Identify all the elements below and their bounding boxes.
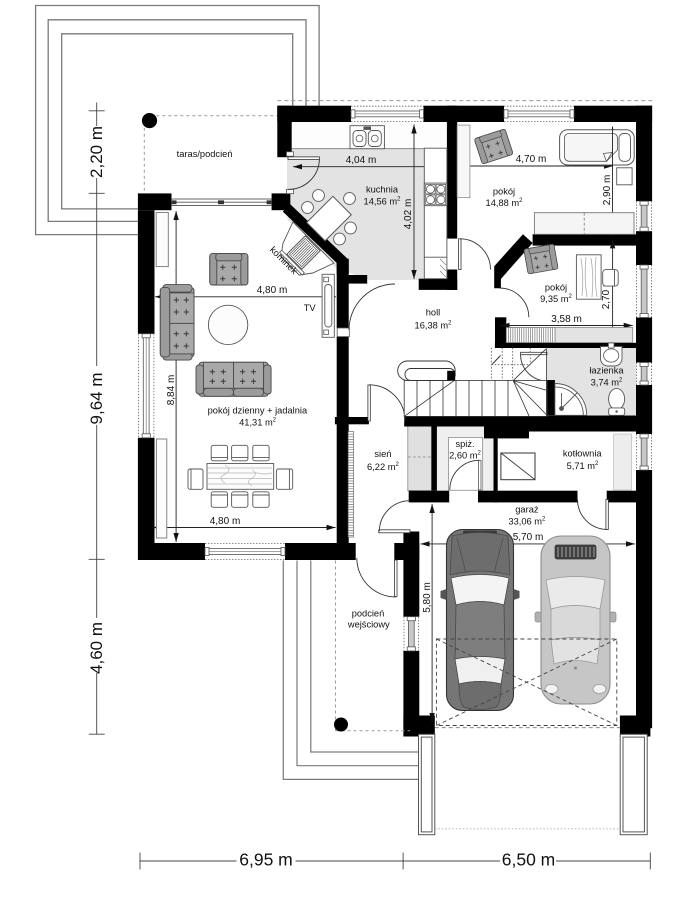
svg-text:4,70 m: 4,70 m — [516, 154, 547, 165]
svg-text:podcień: podcień — [352, 608, 385, 618]
svg-text:4,80 m: 4,80 m — [210, 516, 241, 527]
svg-text:16,38 m2: 16,38 m2 — [415, 321, 453, 331]
svg-text:33,06 m2: 33,06 m2 — [508, 516, 546, 526]
svg-text:kuchnia: kuchnia — [366, 185, 399, 195]
svg-text:8,84 m: 8,84 m — [166, 375, 177, 406]
svg-text:2,20 m: 2,20 m — [87, 126, 106, 178]
svg-text:6,95 m: 6,95 m — [239, 850, 293, 870]
svg-text:14,88 m2: 14,88 m2 — [486, 198, 524, 208]
svg-text:holl: holl — [426, 308, 440, 318]
svg-text:41,31 m2: 41,31 m2 — [239, 418, 277, 428]
svg-text:5,70 m: 5,70 m — [513, 532, 544, 543]
svg-text:3,58 m: 3,58 m — [551, 314, 582, 325]
svg-text:garaż: garaż — [515, 504, 539, 514]
svg-text:sień: sień — [374, 449, 391, 459]
svg-text:4,02 m: 4,02 m — [403, 199, 414, 230]
svg-text:6,22 m2: 6,22 m2 — [367, 462, 399, 472]
svg-text:2,60 m2: 2,60 m2 — [449, 451, 481, 461]
svg-text:pokój dzienny + jadalnia: pokój dzienny + jadalnia — [208, 406, 308, 416]
svg-text:taras/podcień: taras/podcień — [177, 149, 233, 159]
svg-text:6,50 m: 6,50 m — [502, 850, 556, 870]
svg-text:3,74 m2: 3,74 m2 — [591, 378, 623, 388]
svg-text:spiż.: spiż. — [455, 439, 474, 449]
svg-text:4,60 m: 4,60 m — [87, 622, 106, 674]
svg-text:4,04 m: 4,04 m — [346, 155, 377, 166]
svg-text:9,35 m2: 9,35 m2 — [540, 294, 572, 304]
svg-text:kotłownia: kotłownia — [563, 449, 603, 459]
svg-text:pokój: pokój — [493, 186, 515, 196]
svg-text:9,64 m: 9,64 m — [87, 373, 106, 425]
svg-text:pokój: pokój — [545, 283, 567, 293]
svg-text:4,80 m: 4,80 m — [257, 285, 288, 296]
svg-text:łazienka: łazienka — [589, 365, 624, 375]
svg-text:14,56 m2: 14,56 m2 — [364, 196, 402, 206]
svg-text:TV: TV — [304, 303, 317, 313]
svg-text:5,71 m2: 5,71 m2 — [567, 461, 599, 471]
svg-text:5,80 m: 5,80 m — [422, 582, 433, 613]
svg-text:wejściowy: wejściowy — [347, 620, 390, 630]
svg-text:2,90 m: 2,90 m — [602, 175, 613, 206]
